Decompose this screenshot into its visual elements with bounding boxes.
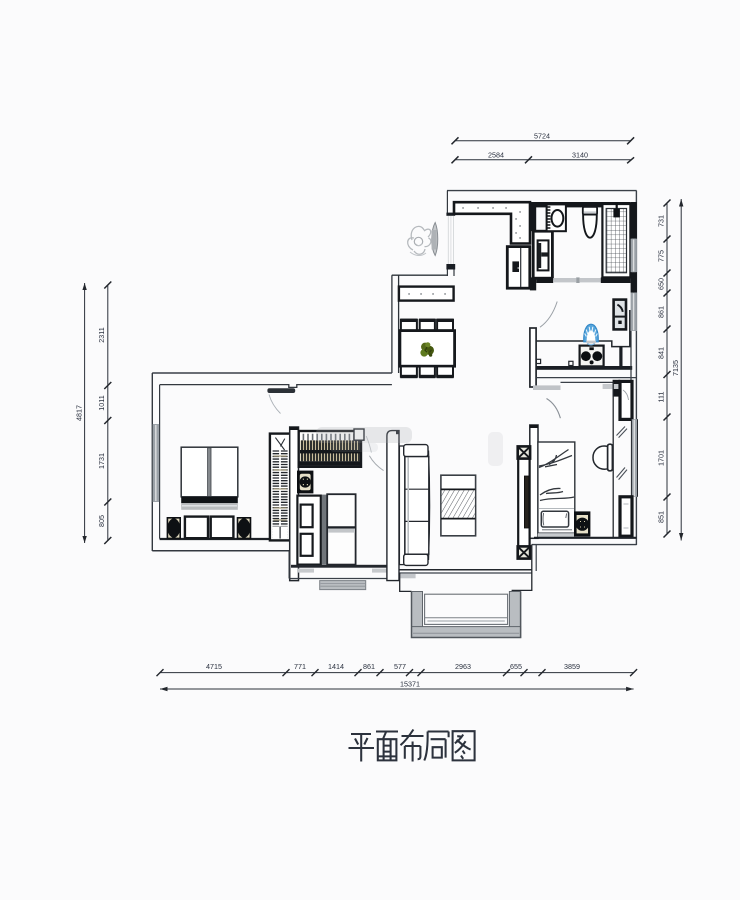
svg-text:111: 111 bbox=[656, 392, 665, 403]
svg-text:841: 841 bbox=[656, 347, 665, 359]
svg-text:2963: 2963 bbox=[455, 662, 471, 671]
svg-text:771: 771 bbox=[294, 662, 306, 671]
svg-text:805: 805 bbox=[97, 515, 106, 527]
svg-text:2584: 2584 bbox=[488, 151, 504, 160]
svg-text:7135: 7135 bbox=[671, 360, 680, 376]
svg-text:861: 861 bbox=[363, 662, 375, 671]
svg-text:861: 861 bbox=[656, 306, 665, 318]
svg-text:655: 655 bbox=[510, 662, 522, 671]
svg-text:4715: 4715 bbox=[206, 662, 222, 671]
svg-text:5724: 5724 bbox=[534, 132, 550, 141]
svg-text:15371: 15371 bbox=[400, 679, 420, 688]
svg-text:1011: 1011 bbox=[97, 395, 106, 410]
svg-text:650: 650 bbox=[656, 278, 665, 290]
svg-text:775: 775 bbox=[656, 250, 665, 262]
svg-text:1731: 1731 bbox=[97, 453, 106, 469]
svg-text:4817: 4817 bbox=[75, 405, 84, 421]
svg-text:1701: 1701 bbox=[656, 450, 665, 466]
svg-text:3140: 3140 bbox=[572, 151, 588, 160]
svg-text:2311: 2311 bbox=[97, 327, 106, 342]
svg-text:851: 851 bbox=[656, 511, 665, 523]
svg-text:731: 731 bbox=[656, 215, 665, 227]
svg-text:1414: 1414 bbox=[328, 662, 344, 671]
svg-text:577: 577 bbox=[394, 662, 406, 671]
svg-text:3859: 3859 bbox=[564, 662, 580, 671]
